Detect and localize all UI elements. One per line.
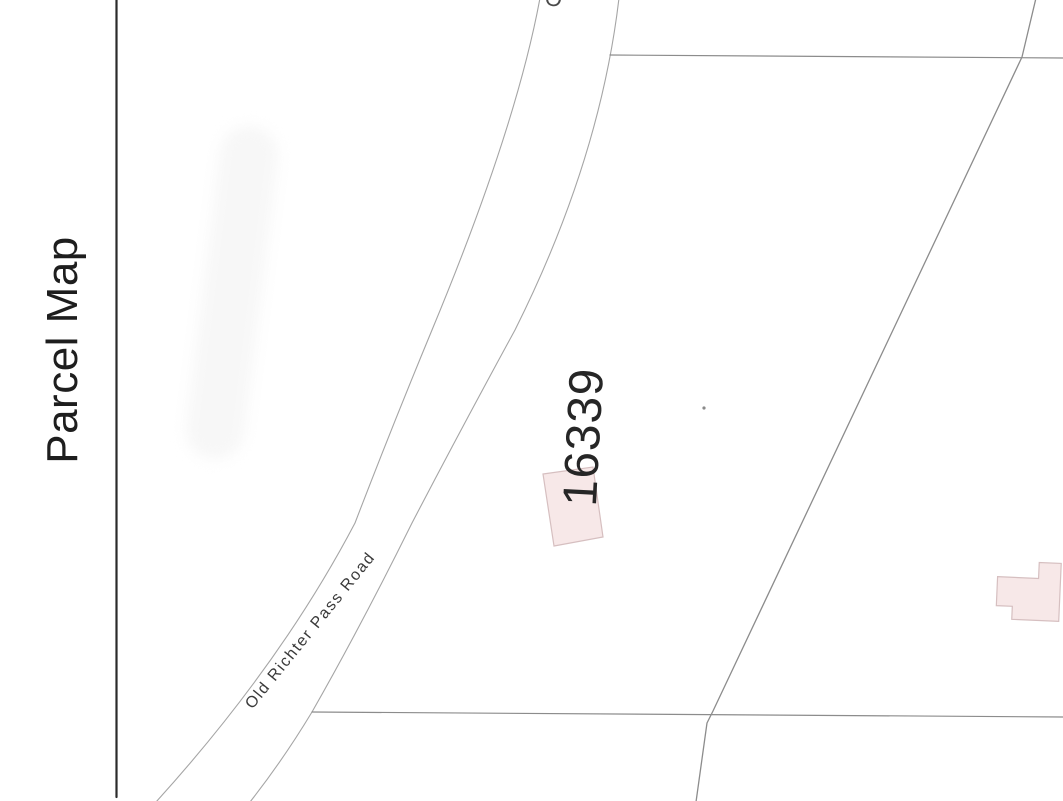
parcel-boundary-south bbox=[312, 712, 1063, 717]
road-left-edge bbox=[156, 0, 540, 801]
building-footprint-east bbox=[996, 561, 1061, 622]
parcel-map-canvas bbox=[0, 0, 1063, 801]
parcel-boundary-north bbox=[610, 55, 1063, 58]
page-title: Parcel Map bbox=[38, 236, 88, 464]
parcel-boundary-east bbox=[696, 0, 1036, 801]
parcel-map-page: Parcel Map 16339 Old Richter Pass Road O bbox=[0, 0, 1063, 801]
parcel-number-label: 16339 bbox=[553, 366, 615, 507]
map-speck bbox=[702, 406, 705, 409]
